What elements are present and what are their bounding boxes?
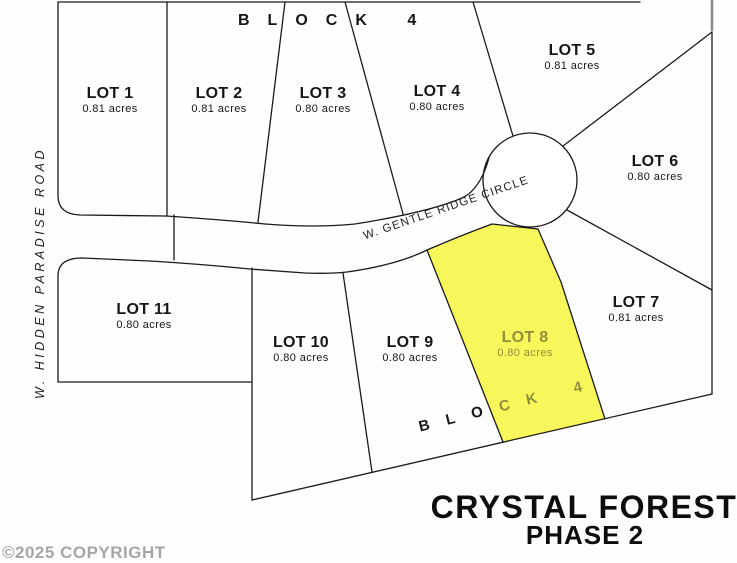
hidden-paradise-road-label: W. HIDDEN PARADISE ROAD xyxy=(33,147,47,399)
lot-10-name: LOT 10 xyxy=(273,335,329,352)
lot-10-label: LOT 10 0.80 acres xyxy=(273,335,329,364)
lot-6-name: LOT 6 xyxy=(627,154,682,171)
lot-9-name: LOT 9 xyxy=(382,335,437,352)
lot-3-acres: 0.80 acres xyxy=(295,104,350,116)
lot-4-label: LOT 4 0.80 acres xyxy=(409,84,464,113)
lot-1-name: LOT 1 xyxy=(82,86,137,103)
lot-6-acres: 0.80 acres xyxy=(627,172,682,184)
lot-2-name: LOT 2 xyxy=(191,86,246,103)
lot-11-name: LOT 11 xyxy=(116,302,171,319)
west-border-and-road-south-edge xyxy=(58,250,427,382)
lot-8-acres: 0.80 acres xyxy=(497,348,552,360)
copyright-notice: ©2025 COPYRIGHT xyxy=(2,543,166,563)
lot-9-acres: 0.80 acres xyxy=(382,353,437,365)
lot-6-label: LOT 6 0.80 acres xyxy=(627,154,682,183)
lot-10-acres: 0.80 acres xyxy=(273,353,329,365)
lot-1-acres: 0.81 acres xyxy=(82,104,137,116)
lot-7-acres: 0.81 acres xyxy=(608,313,663,325)
lot-11-label: LOT 11 0.80 acres xyxy=(116,302,171,331)
lot4-lot5-boundary xyxy=(473,2,513,136)
lot-7-label: LOT 7 0.81 acres xyxy=(608,295,663,324)
subdivision-phase: PHASE 2 xyxy=(526,520,644,551)
lot-7-name: LOT 7 xyxy=(608,295,663,312)
lot-4-name: LOT 4 xyxy=(409,84,464,101)
lot-8-label: LOT 8 0.80 acres xyxy=(497,330,552,359)
lot3-lot4-boundary xyxy=(345,2,403,214)
lot-9-label: LOT 9 0.80 acres xyxy=(382,335,437,364)
lot-5-name: LOT 5 xyxy=(544,43,599,60)
block-4-label-top: BLOCK 4 xyxy=(238,12,434,30)
lot-4-acres: 0.80 acres xyxy=(409,102,464,114)
lot-8-name: LOT 8 xyxy=(497,330,552,347)
lot-5-acres: 0.81 acres xyxy=(544,61,599,73)
lot2-lot3-boundary xyxy=(258,2,285,222)
plat-map-image: BLOCK 4 BLOCK 4 W. GENTLE RIDGE CIRCLE W… xyxy=(0,0,737,563)
lot-3-name: LOT 3 xyxy=(295,86,350,103)
cul-de-sac-circle xyxy=(483,133,577,227)
lot-11-acres: 0.80 acres xyxy=(116,320,171,332)
lot-5-label: LOT 5 0.81 acres xyxy=(544,43,599,72)
lot-2-acres: 0.81 acres xyxy=(191,104,246,116)
lot6-lot7-boundary xyxy=(567,210,712,290)
parcel-boundaries xyxy=(58,2,712,500)
lot10-lot9-boundary xyxy=(343,273,372,472)
lot-2-label: LOT 2 0.81 acres xyxy=(191,86,246,115)
lot-1-label: LOT 1 0.81 acres xyxy=(82,86,137,115)
lot-3-label: LOT 3 0.80 acres xyxy=(295,86,350,115)
